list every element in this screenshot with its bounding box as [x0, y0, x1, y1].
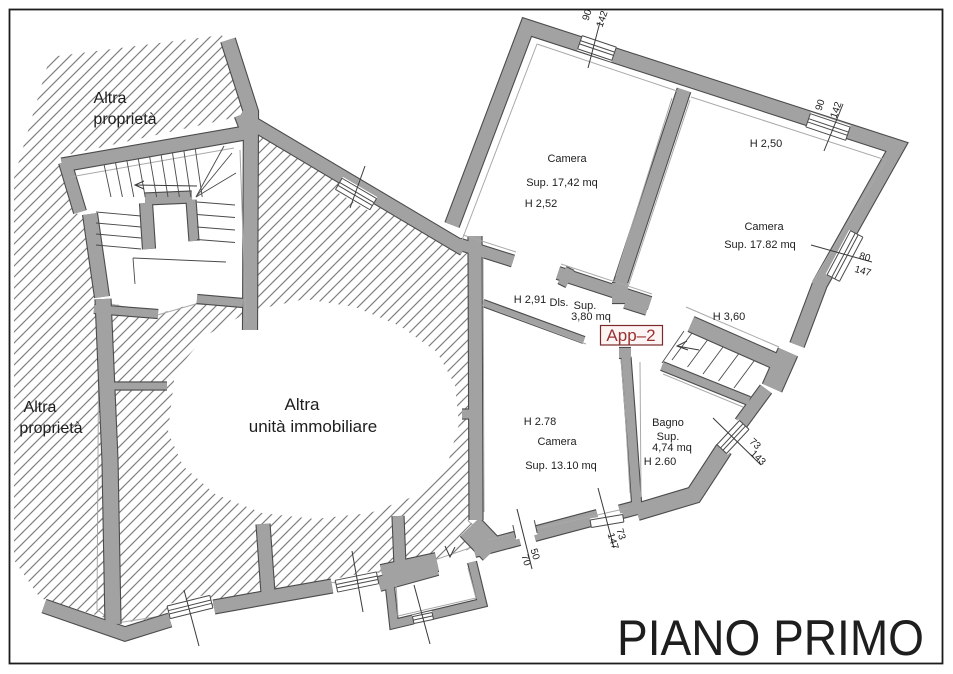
- svg-text:unità immobiliare: unità immobiliare: [249, 417, 378, 436]
- svg-text:4,74 mq: 4,74 mq: [652, 442, 692, 454]
- svg-text:H 2,91: H 2,91: [514, 294, 546, 306]
- svg-text:Sup. 17.82 mq: Sup. 17.82 mq: [724, 239, 796, 251]
- svg-text:H 2.60: H 2.60: [644, 456, 676, 468]
- svg-text:3,80 mq: 3,80 mq: [571, 311, 611, 323]
- svg-text:H 2,52: H 2,52: [525, 198, 557, 210]
- svg-text:Camera: Camera: [547, 153, 587, 165]
- svg-text:Altra: Altra: [24, 399, 57, 416]
- svg-text:Sup. 13.10 mq: Sup. 13.10 mq: [525, 460, 597, 472]
- svg-text:proprietà: proprietà: [19, 420, 82, 437]
- svg-text:H 2,50: H 2,50: [750, 138, 782, 150]
- svg-text:proprietà: proprietà: [93, 111, 156, 128]
- svg-text:Altra: Altra: [285, 395, 321, 414]
- svg-text:PIANO PRIMO: PIANO PRIMO: [617, 610, 924, 666]
- svg-text:Camera: Camera: [537, 436, 577, 448]
- svg-text:Bagno: Bagno: [652, 417, 684, 429]
- svg-text:Sup. 17,42 mq: Sup. 17,42 mq: [526, 177, 598, 189]
- svg-text:H 3,60: H 3,60: [713, 311, 745, 323]
- svg-text:App–2: App–2: [606, 326, 655, 345]
- svg-text:H 2.78: H 2.78: [524, 416, 556, 428]
- svg-text:Dls.: Dls.: [550, 297, 569, 309]
- svg-text:Camera: Camera: [744, 221, 784, 233]
- svg-text:Altra: Altra: [94, 90, 127, 107]
